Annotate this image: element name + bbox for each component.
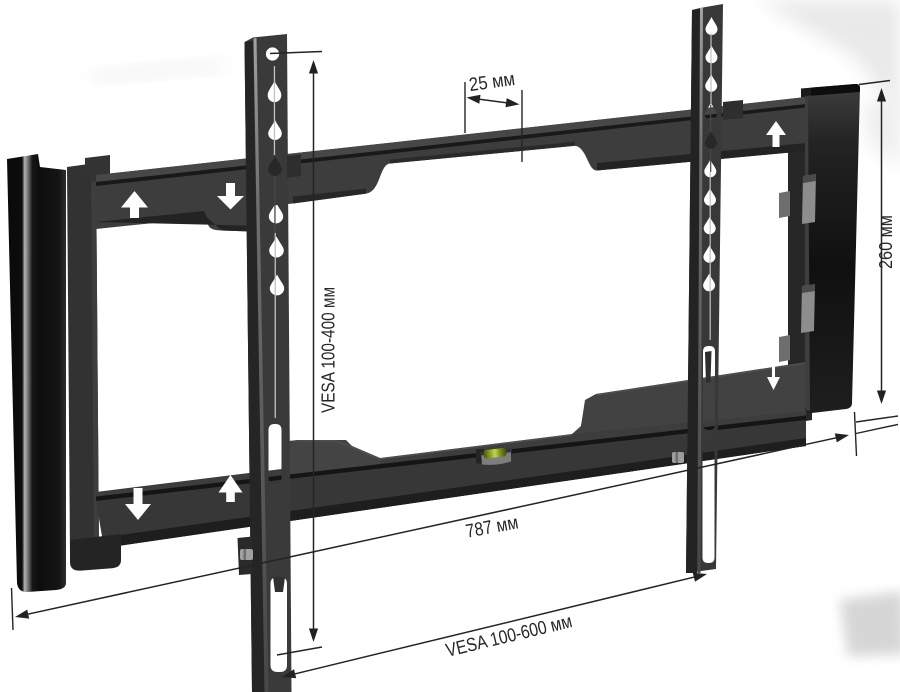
svg-text:VESA 100-400 мм: VESA 100-400 мм <box>319 287 339 413</box>
svg-text:260 мм: 260 мм <box>876 215 896 269</box>
